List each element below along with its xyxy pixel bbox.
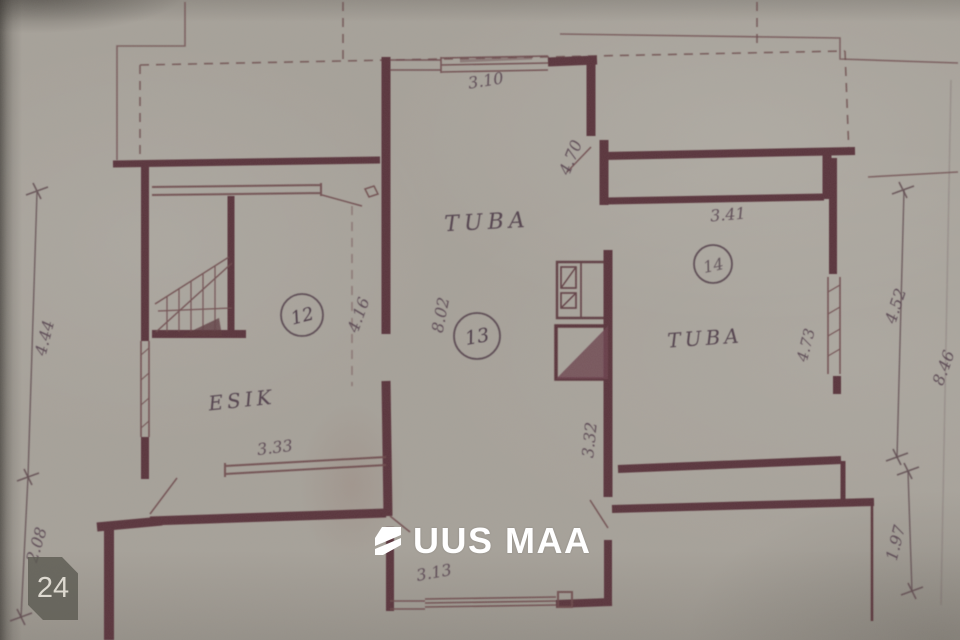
- floor-plan-photo: 12 13 14 TUBA TUBA ESIK 3.10 4.70 3.41 4…: [0, 0, 960, 640]
- watermark-brand-text: UUS MAA: [413, 523, 592, 559]
- watermark: UUS MAA: [372, 522, 592, 560]
- photo-count-label: 24: [37, 572, 69, 605]
- photo-count-badge[interactable]: 24: [28, 557, 78, 620]
- uus-maa-logo-icon: [372, 526, 402, 556]
